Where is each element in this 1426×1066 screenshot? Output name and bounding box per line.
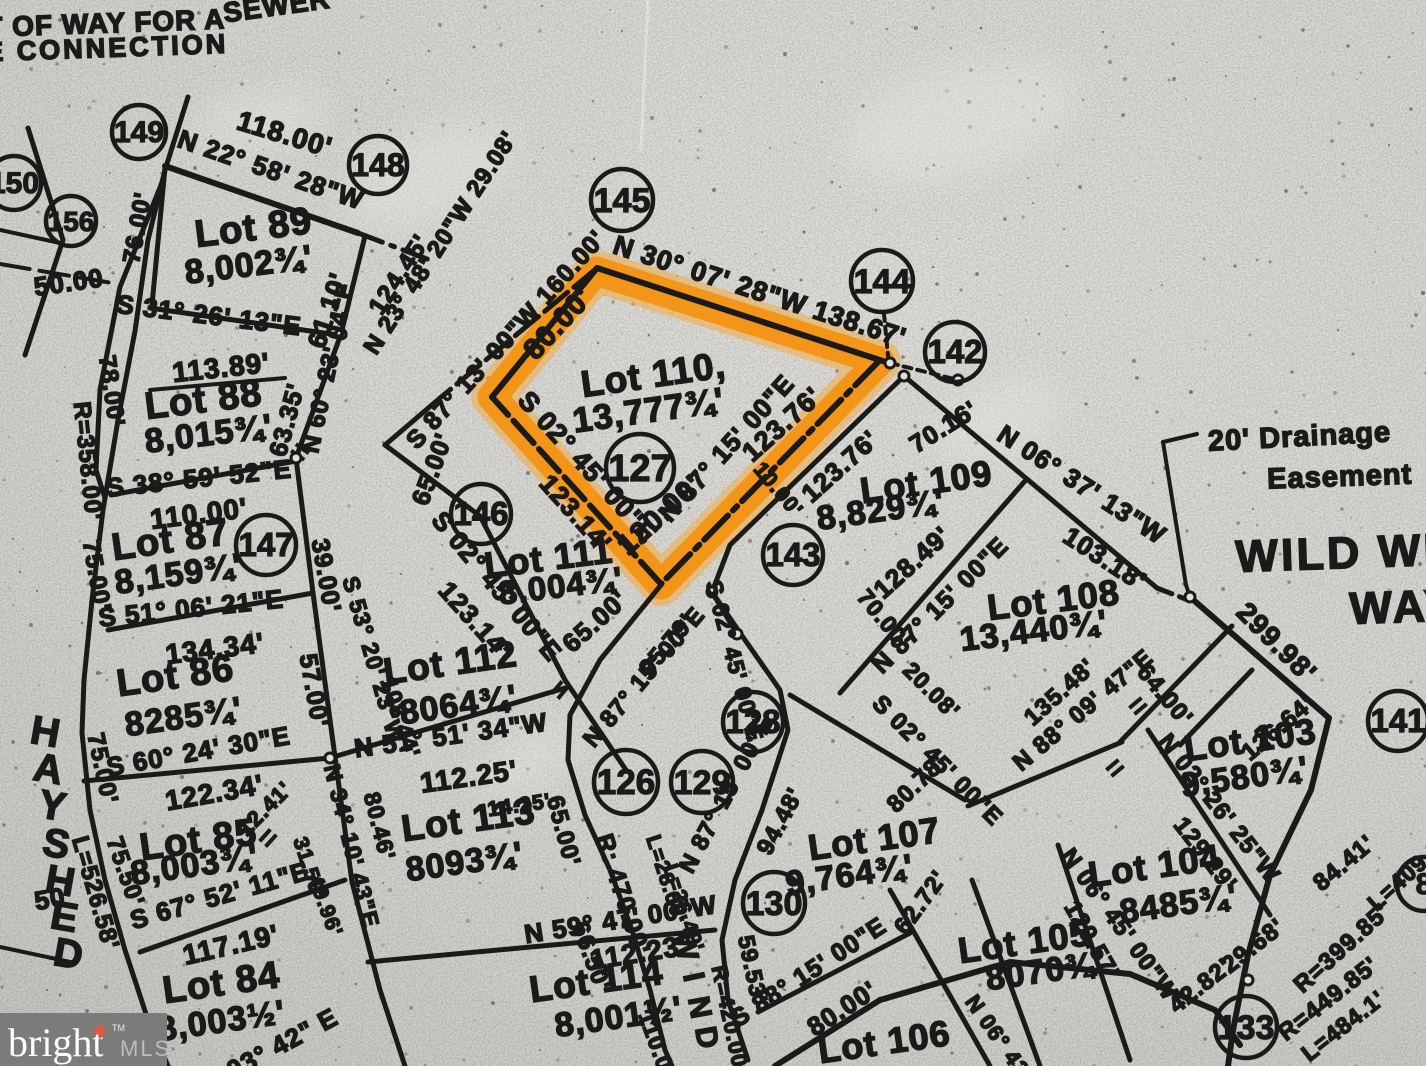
svg-text:WILD WIN: WILD WIN — [1235, 523, 1426, 582]
svg-text:143: 143 — [765, 536, 820, 573]
svg-text:MLS: MLS — [120, 1036, 171, 1061]
svg-text:142: 142 — [927, 333, 982, 370]
svg-text:150: 150 — [0, 167, 39, 200]
svg-text:156: 156 — [48, 206, 95, 237]
svg-text:147: 147 — [238, 526, 293, 563]
svg-text:149: 149 — [114, 116, 164, 149]
svg-text:126: 126 — [597, 763, 655, 802]
svg-text:Easement: Easement — [1267, 458, 1413, 495]
svg-text:133: 133 — [1218, 1009, 1275, 1047]
svg-text:145: 145 — [594, 182, 651, 220]
svg-text:148: 148 — [351, 147, 404, 183]
svg-text:TM: TM — [112, 1023, 125, 1033]
svg-text:144: 144 — [854, 263, 911, 301]
svg-text:WAY: WAY — [1349, 579, 1426, 634]
svg-text:bright: bright — [8, 1020, 104, 1065]
svg-text:141: 141 — [1370, 702, 1425, 739]
